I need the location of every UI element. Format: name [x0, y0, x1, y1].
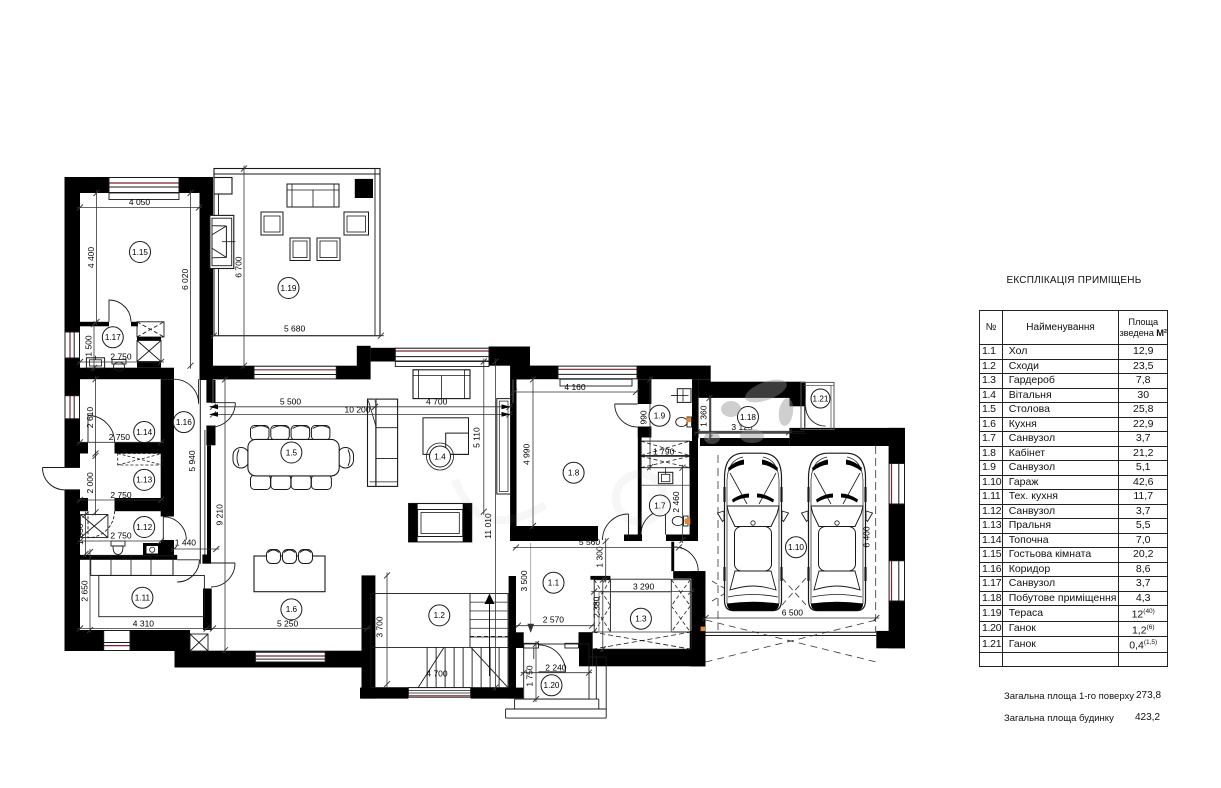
- svg-text:5 250: 5 250: [277, 618, 299, 628]
- svg-text:2 750: 2 750: [110, 531, 132, 541]
- svg-text:2 240: 2 240: [545, 663, 567, 673]
- svg-text:5 680: 5 680: [284, 324, 306, 334]
- svg-text:1.19: 1.19: [281, 284, 297, 293]
- svg-text:2 380: 2 380: [592, 596, 602, 618]
- svg-text:3 700: 3 700: [375, 616, 385, 638]
- svg-text:5 110: 5 110: [472, 427, 482, 448]
- svg-text:2 000: 2 000: [85, 472, 95, 494]
- svg-text:1.3: 1.3: [635, 615, 647, 624]
- svg-text:1.5: 1.5: [286, 448, 298, 457]
- svg-text:2 990: 2 990: [639, 410, 649, 432]
- svg-text:1 300: 1 300: [594, 546, 604, 568]
- svg-text:2 750: 2 750: [110, 490, 132, 500]
- svg-text:3 290: 3 290: [633, 581, 655, 591]
- svg-text:2 750: 2 750: [110, 352, 132, 362]
- svg-text:4 400: 4 400: [86, 247, 96, 269]
- svg-text:4 310: 4 310: [133, 618, 155, 628]
- svg-text:10 200: 10 200: [345, 404, 371, 414]
- svg-text:1.15: 1.15: [132, 248, 148, 257]
- svg-text:2 750: 2 750: [109, 432, 131, 442]
- svg-text:1.2: 1.2: [434, 611, 446, 620]
- svg-text:2 570: 2 570: [543, 615, 565, 625]
- svg-text:4 700: 4 700: [426, 397, 448, 407]
- svg-text:2 460: 2 460: [671, 491, 681, 513]
- svg-text:1.1: 1.1: [548, 579, 560, 588]
- svg-text:1.20: 1.20: [544, 681, 560, 690]
- svg-text:1.16: 1.16: [176, 418, 192, 427]
- svg-text:5 940: 5 940: [187, 450, 197, 472]
- svg-text:1.12: 1.12: [136, 523, 152, 532]
- svg-text:1 750: 1 750: [525, 665, 535, 687]
- svg-text:1 350: 1 350: [75, 523, 85, 545]
- svg-text:9 210: 9 210: [215, 504, 225, 526]
- svg-text:1.13: 1.13: [136, 476, 152, 485]
- svg-text:5 500: 5 500: [280, 397, 302, 407]
- svg-text:1.8: 1.8: [568, 469, 580, 478]
- svg-text:6 500: 6 500: [782, 608, 804, 618]
- svg-text:1.6: 1.6: [286, 605, 298, 614]
- svg-text:1.21: 1.21: [813, 394, 829, 403]
- svg-text:6 400: 6 400: [862, 526, 872, 548]
- svg-text:4 990: 4 990: [521, 443, 531, 465]
- svg-text:4 700: 4 700: [426, 669, 448, 679]
- svg-text:1.4: 1.4: [434, 452, 446, 461]
- svg-text:5 560: 5 560: [579, 537, 601, 547]
- svg-text:1.10: 1.10: [788, 543, 804, 552]
- svg-text:2 610: 2 610: [85, 407, 95, 429]
- svg-text:1.17: 1.17: [105, 333, 121, 342]
- svg-text:6 700: 6 700: [234, 256, 244, 278]
- svg-text:2 650: 2 650: [80, 580, 90, 602]
- svg-text:1.18: 1.18: [740, 413, 756, 422]
- svg-text:1 790: 1 790: [653, 446, 675, 456]
- svg-text:1 360: 1 360: [699, 405, 709, 427]
- svg-text:1.11: 1.11: [135, 594, 151, 603]
- svg-text:1 440: 1 440: [175, 538, 197, 548]
- svg-text:1.9: 1.9: [654, 412, 666, 421]
- svg-text:4 160: 4 160: [564, 382, 586, 392]
- svg-text:3 500: 3 500: [519, 570, 529, 592]
- svg-text:1.14: 1.14: [136, 428, 152, 437]
- svg-text:1 500: 1 500: [84, 335, 94, 357]
- svg-text:6 020: 6 020: [180, 268, 190, 290]
- svg-text:4 050: 4 050: [129, 197, 151, 207]
